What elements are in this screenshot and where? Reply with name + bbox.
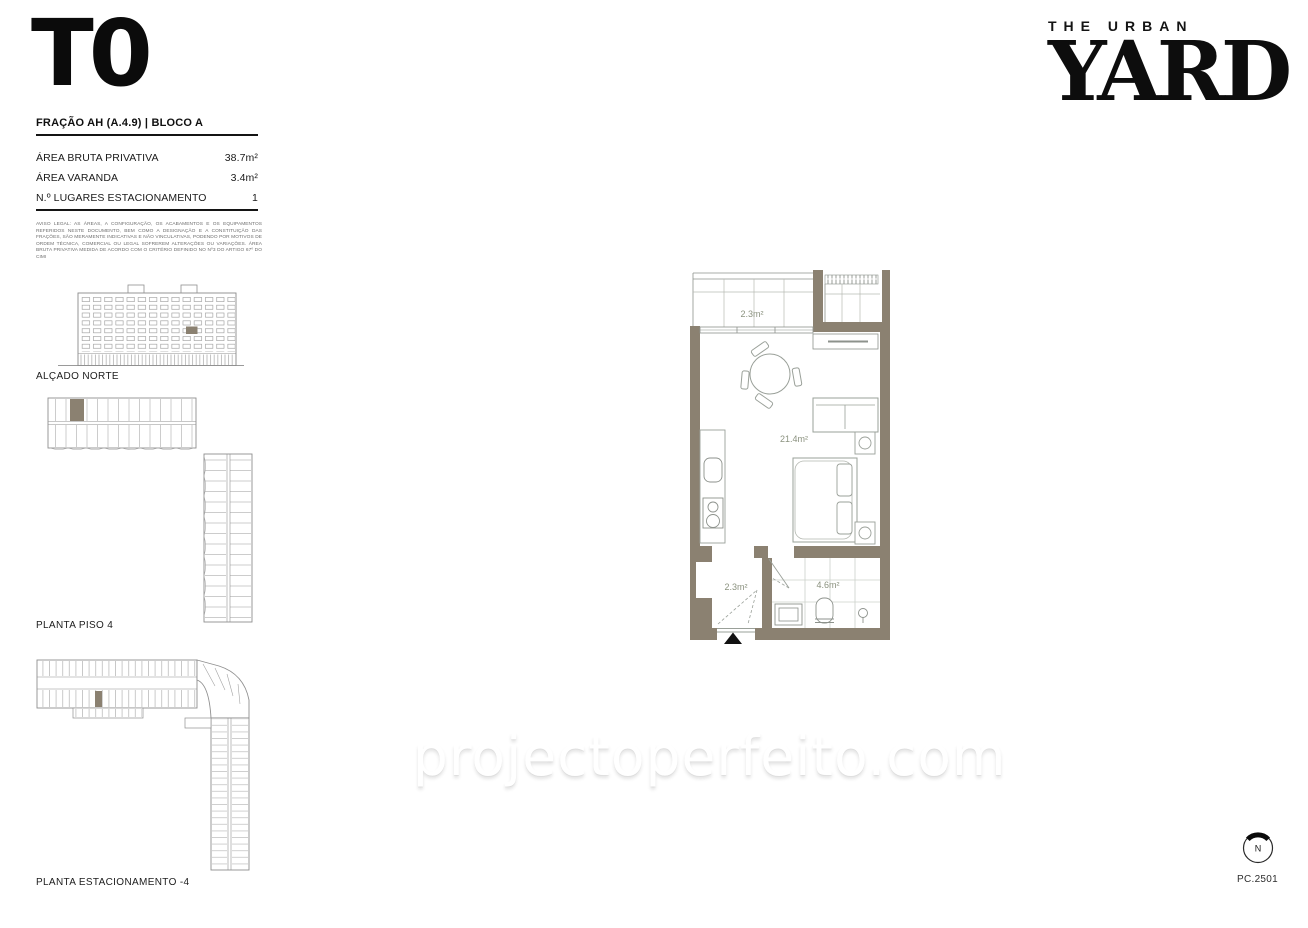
pillow bbox=[837, 464, 852, 496]
hall-area-label: 2.3m² bbox=[724, 582, 747, 592]
north-compass: N bbox=[1239, 828, 1277, 868]
chair bbox=[741, 371, 750, 390]
legal-disclaimer: AVISO LEGAL: AS ÁREAS, A CONFIGURAÇÃO, O… bbox=[36, 222, 262, 262]
door-swing bbox=[718, 590, 757, 624]
divider-line-bottom bbox=[36, 209, 258, 211]
elevation-drawing bbox=[36, 280, 248, 376]
chair bbox=[755, 393, 774, 409]
vertical-wing bbox=[204, 454, 252, 622]
floor4-keyplan bbox=[40, 392, 256, 624]
shower-drain-icon bbox=[859, 609, 868, 618]
sofa bbox=[813, 398, 878, 432]
area-value: 38.7m² bbox=[225, 152, 258, 164]
entry bbox=[717, 590, 757, 644]
table-row: ÁREA VARANDA 3.4m² bbox=[36, 168, 258, 188]
kitchen-counter bbox=[700, 430, 725, 543]
elevation-label: ALÇADO NORTE bbox=[36, 371, 119, 382]
bath-area-label: 4.6m² bbox=[816, 580, 839, 590]
window-wall bbox=[700, 327, 813, 333]
parking-keyplan bbox=[33, 656, 259, 874]
entrance-arrow bbox=[724, 633, 742, 645]
chair bbox=[792, 368, 802, 387]
area-label: ÁREA BRUTA PRIVATIVA bbox=[36, 152, 159, 164]
page-code: PC.2501 bbox=[1237, 874, 1278, 885]
area-table: ÁREA BRUTA PRIVATIVA 38.7m² ÁREA VARANDA… bbox=[36, 148, 258, 208]
garage-corner bbox=[197, 660, 249, 718]
table-row: N.º LUGARES ESTACIONAMENTO 1 bbox=[36, 188, 258, 208]
neighbour-balcony bbox=[825, 275, 880, 322]
wall-recess bbox=[696, 562, 712, 598]
floor-label: PLANTA PISO 4 bbox=[36, 620, 113, 631]
brand-logo: THE URBAN YARD bbox=[1048, 18, 1272, 108]
horizontal-garage bbox=[37, 660, 197, 718]
area-label: N.º LUGARES ESTACIONAMENTO bbox=[36, 192, 207, 204]
table-row: ÁREA BRUTA PRIVATIVA 38.7m² bbox=[36, 148, 258, 168]
lamp-icon bbox=[859, 527, 871, 539]
highlighted-parking-space bbox=[95, 691, 102, 707]
fraction-subtitle: FRAÇÃO AH (A.4.9) | BLOCO A bbox=[36, 117, 203, 129]
floorplan-sheet: T0 FRAÇÃO AH (A.4.9) | BLOCO A ÁREA BRUT… bbox=[0, 0, 1308, 928]
typology-title: T0 bbox=[31, 6, 148, 103]
unit-floorplan: 2.3m² 21.4m² 2.3m² 4.6m² bbox=[690, 270, 890, 648]
north-letter: N bbox=[1255, 844, 1262, 854]
area-value: 3.4m² bbox=[231, 172, 258, 184]
balcony-area-label: 2.3m² bbox=[740, 309, 763, 319]
bed bbox=[793, 432, 875, 544]
dining-table bbox=[741, 341, 802, 409]
living-area-label: 21.4m² bbox=[780, 434, 808, 444]
balcony bbox=[693, 273, 813, 328]
brand-line2: YARD bbox=[1048, 36, 1272, 108]
door-swing bbox=[748, 590, 757, 624]
closet bbox=[813, 334, 878, 349]
ground-floor-band bbox=[79, 355, 235, 366]
door-swing bbox=[772, 578, 789, 588]
divider-line-top bbox=[36, 134, 258, 136]
area-label: ÁREA VARANDA bbox=[36, 172, 118, 184]
highlighted-unit bbox=[186, 327, 198, 335]
watermark: projectoperfeito.com bbox=[413, 724, 1007, 788]
toilet-icon bbox=[815, 598, 834, 623]
bathroom bbox=[769, 558, 880, 628]
lamp-icon bbox=[859, 437, 871, 449]
vertical-garage bbox=[185, 718, 249, 870]
horizontal-wing bbox=[48, 398, 196, 450]
area-value: 1 bbox=[252, 192, 258, 204]
sink-icon bbox=[704, 458, 722, 482]
window-grid bbox=[79, 296, 235, 352]
highlighted-unit bbox=[70, 399, 84, 421]
parking-label: PLANTA ESTACIONAMENTO -4 bbox=[36, 877, 189, 888]
pillow bbox=[837, 502, 852, 534]
